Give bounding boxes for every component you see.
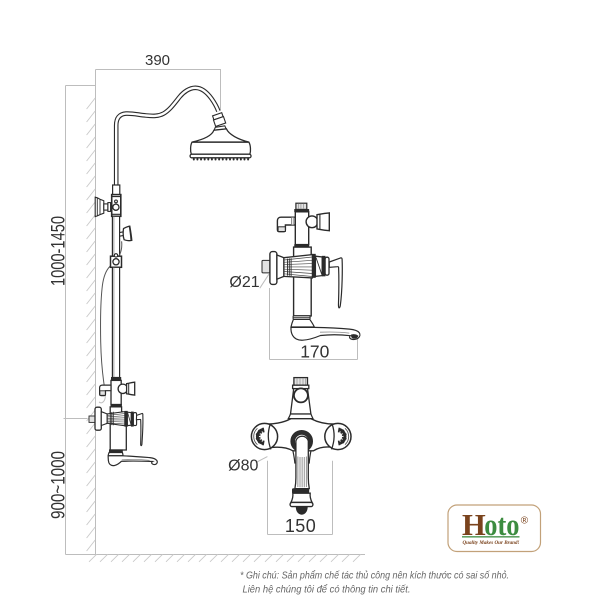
svg-text:390: 390 <box>145 52 170 69</box>
svg-text:150: 150 <box>285 516 316 536</box>
svg-text:Ø80: Ø80 <box>228 458 258 475</box>
svg-text:Liên hệ chúng tôi để có thông: Liên hệ chúng tôi để có thông tin chi ti… <box>243 584 411 596</box>
svg-text:Quality Makes Our Brand!: Quality Makes Our Brand! <box>463 540 520 546</box>
svg-text:®: ® <box>521 516 529 527</box>
svg-text:Ø21: Ø21 <box>229 274 259 291</box>
svg-text:900~1000: 900~1000 <box>48 451 69 519</box>
svg-text:170: 170 <box>300 342 329 362</box>
svg-text:1000-1450: 1000-1450 <box>47 216 69 286</box>
svg-text:* Ghi chú: Sản phẩm chế tác th: * Ghi chú: Sản phẩm chế tác thủ công nên… <box>240 570 509 582</box>
